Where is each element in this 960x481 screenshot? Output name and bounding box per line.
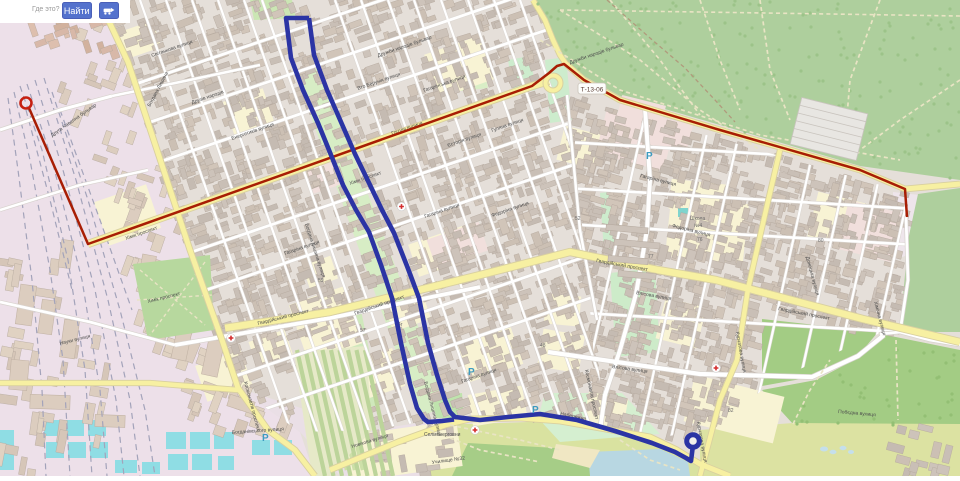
svg-text:59: 59 (318, 278, 324, 284)
svg-text:P: P (532, 405, 539, 416)
svg-text:Т-13-06: Т-13-06 (581, 87, 604, 94)
svg-text:80: 80 (818, 238, 824, 244)
svg-text:57: 57 (360, 328, 366, 334)
svg-text:76: 76 (697, 237, 703, 243)
svg-text:52: 52 (575, 216, 581, 222)
svg-text:77: 77 (648, 254, 654, 260)
svg-text:№4: №4 (694, 223, 702, 229)
svg-text:P: P (468, 367, 475, 378)
svg-text:Селменерговни: Селменерговни (424, 432, 461, 438)
svg-text:82: 82 (728, 408, 734, 414)
svg-text:P: P (262, 433, 269, 444)
svg-text:Школа: Школа (690, 216, 705, 222)
svg-text:48: 48 (540, 343, 546, 349)
svg-text:P: P (646, 151, 653, 162)
